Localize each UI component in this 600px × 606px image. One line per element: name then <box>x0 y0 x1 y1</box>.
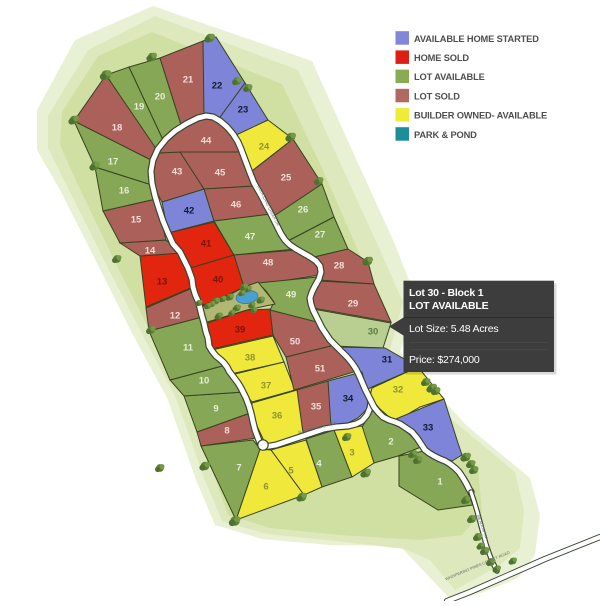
svg-text:44: 44 <box>201 135 212 146</box>
svg-text:14: 14 <box>145 245 156 256</box>
svg-text:19: 19 <box>134 101 145 112</box>
svg-text:15: 15 <box>131 214 142 225</box>
svg-text:49: 49 <box>286 289 297 300</box>
svg-text:20: 20 <box>155 91 166 102</box>
svg-text:9: 9 <box>213 403 218 414</box>
svg-text:AVAILABLE HOME STARTED: AVAILABLE HOME STARTED <box>414 34 539 44</box>
svg-text:26: 26 <box>298 204 309 215</box>
svg-text:13: 13 <box>157 276 168 287</box>
svg-text:27: 27 <box>315 229 326 240</box>
svg-text:2: 2 <box>388 436 393 447</box>
svg-text:6: 6 <box>263 481 268 492</box>
svg-text:45: 45 <box>215 167 226 178</box>
svg-text:39: 39 <box>235 324 246 335</box>
svg-text:10: 10 <box>199 375 210 386</box>
svg-text:11: 11 <box>183 342 194 353</box>
svg-text:32: 32 <box>393 384 404 395</box>
svg-text:40: 40 <box>213 274 224 285</box>
svg-text:42: 42 <box>184 205 195 216</box>
svg-text:38: 38 <box>245 352 256 363</box>
svg-text:46: 46 <box>231 199 242 210</box>
svg-text:43: 43 <box>172 166 183 177</box>
svg-text:17: 17 <box>108 156 119 167</box>
svg-text:7: 7 <box>236 462 241 473</box>
svg-text:48: 48 <box>263 257 274 268</box>
svg-text:1: 1 <box>437 476 443 487</box>
svg-text:35: 35 <box>311 401 322 412</box>
svg-text:12: 12 <box>170 310 181 321</box>
svg-text:LOT SOLD: LOT SOLD <box>414 91 460 101</box>
svg-text:25: 25 <box>281 172 292 183</box>
svg-text:HOME SOLD: HOME SOLD <box>414 53 469 63</box>
svg-text:PARK & POND: PARK & POND <box>414 130 477 140</box>
svg-text:34: 34 <box>343 393 354 404</box>
svg-text:22: 22 <box>212 80 223 91</box>
svg-text:50: 50 <box>290 336 301 347</box>
svg-text:30: 30 <box>368 326 379 337</box>
svg-text:51: 51 <box>315 363 326 374</box>
svg-text:5: 5 <box>288 465 294 476</box>
svg-text:16: 16 <box>119 185 130 196</box>
svg-text:8: 8 <box>224 425 229 436</box>
svg-text:BUILDER OWNED- AVAILABLE: BUILDER OWNED- AVAILABLE <box>414 111 547 121</box>
svg-text:29: 29 <box>348 298 359 309</box>
svg-text:24: 24 <box>259 141 270 152</box>
svg-text:4: 4 <box>316 458 322 469</box>
svg-text:LOT AVAILABLE: LOT AVAILABLE <box>409 300 489 312</box>
svg-text:33: 33 <box>423 422 434 433</box>
svg-text:23: 23 <box>238 104 249 115</box>
svg-text:Price: $274,000: Price: $274,000 <box>409 354 480 366</box>
svg-text:41: 41 <box>201 238 212 249</box>
svg-text:LOT AVAILABLE: LOT AVAILABLE <box>414 72 485 82</box>
svg-text:21: 21 <box>183 74 194 85</box>
svg-text:Lot Size: 5.48 Acres: Lot Size: 5.48 Acres <box>409 323 498 335</box>
svg-text:3: 3 <box>349 447 354 458</box>
svg-text:31: 31 <box>382 354 393 365</box>
svg-text:18: 18 <box>112 122 123 133</box>
svg-text:47: 47 <box>245 231 256 242</box>
svg-text:28: 28 <box>334 260 345 271</box>
svg-text:37: 37 <box>261 380 272 391</box>
svg-text:36: 36 <box>272 410 283 421</box>
svg-text:Lot 30 - Block 1: Lot 30 - Block 1 <box>409 287 484 299</box>
